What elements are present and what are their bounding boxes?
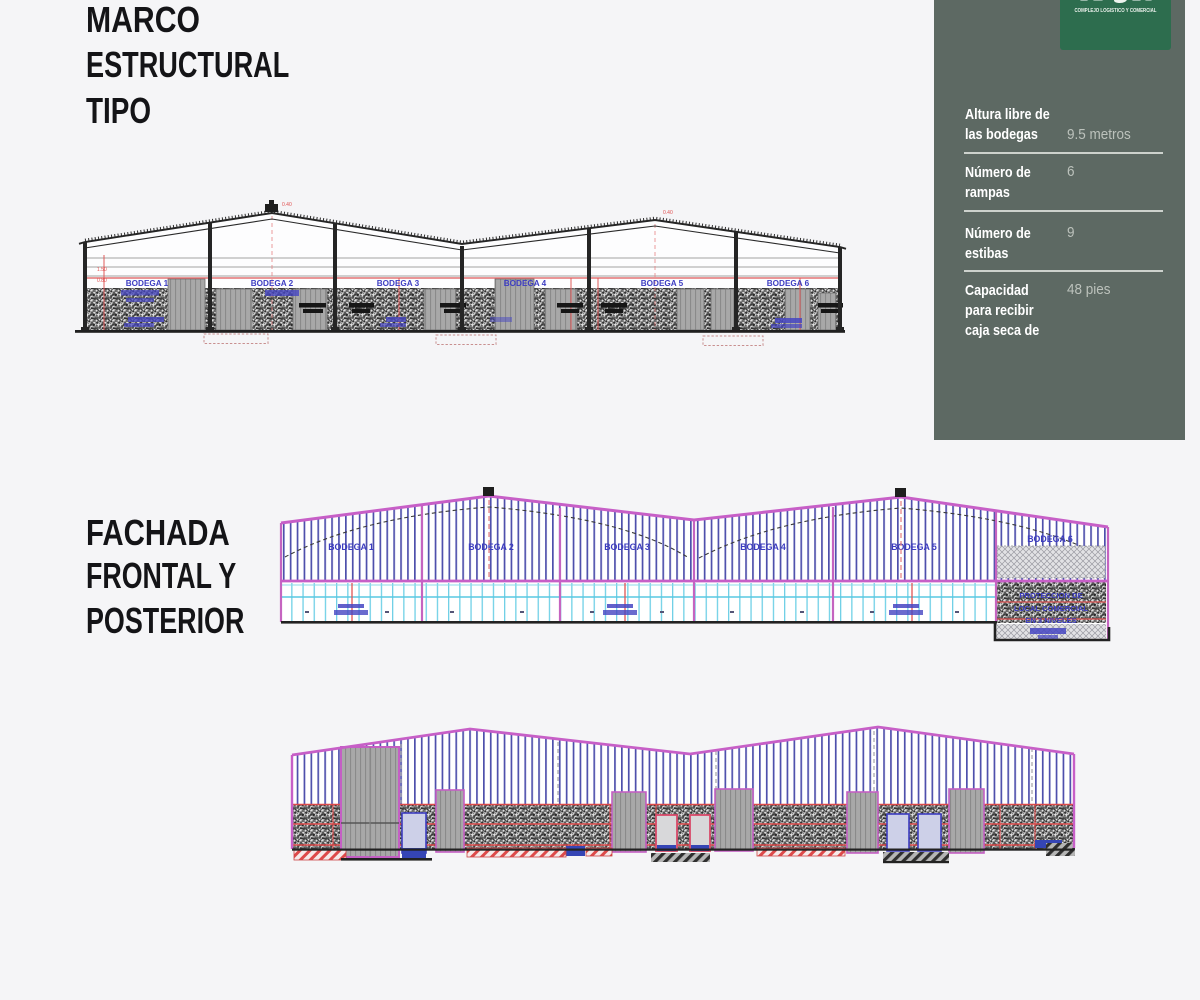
svg-text:BODEGA 3: BODEGA 3 (604, 542, 650, 552)
svg-text:PROTECCION DE: PROTECCION DE (1019, 591, 1082, 600)
svg-text:0.40: 0.40 (663, 210, 673, 216)
svg-text:BODEGA 2: BODEGA 2 (251, 279, 294, 288)
svg-text:BODEGA 5: BODEGA 5 (641, 279, 684, 288)
svg-text:LOCAL COMERCIAL: LOCAL COMERCIAL (1014, 604, 1088, 613)
svg-text:BODEGA 1: BODEGA 1 (126, 279, 169, 288)
svg-text:BODEGA 2: BODEGA 2 (468, 542, 514, 552)
svg-text:BODEGA 4: BODEGA 4 (504, 279, 547, 288)
svg-text:EN 3 NIVELES: EN 3 NIVELES (1025, 616, 1076, 625)
svg-text:1.50: 1.50 (97, 267, 107, 273)
svg-text:BODEGA 1: BODEGA 1 (328, 542, 374, 552)
svg-text:BODEGA 4: BODEGA 4 (740, 542, 786, 552)
svg-text:0.40: 0.40 (282, 202, 292, 208)
svg-text:BODEGA 5: BODEGA 5 (891, 542, 937, 552)
svg-text:0.80: 0.80 (97, 278, 107, 284)
svg-text:BODEGA 3: BODEGA 3 (377, 279, 420, 288)
svg-text:BODEGA 6: BODEGA 6 (1027, 534, 1073, 544)
svg-text:BODEGA 6: BODEGA 6 (767, 279, 810, 288)
